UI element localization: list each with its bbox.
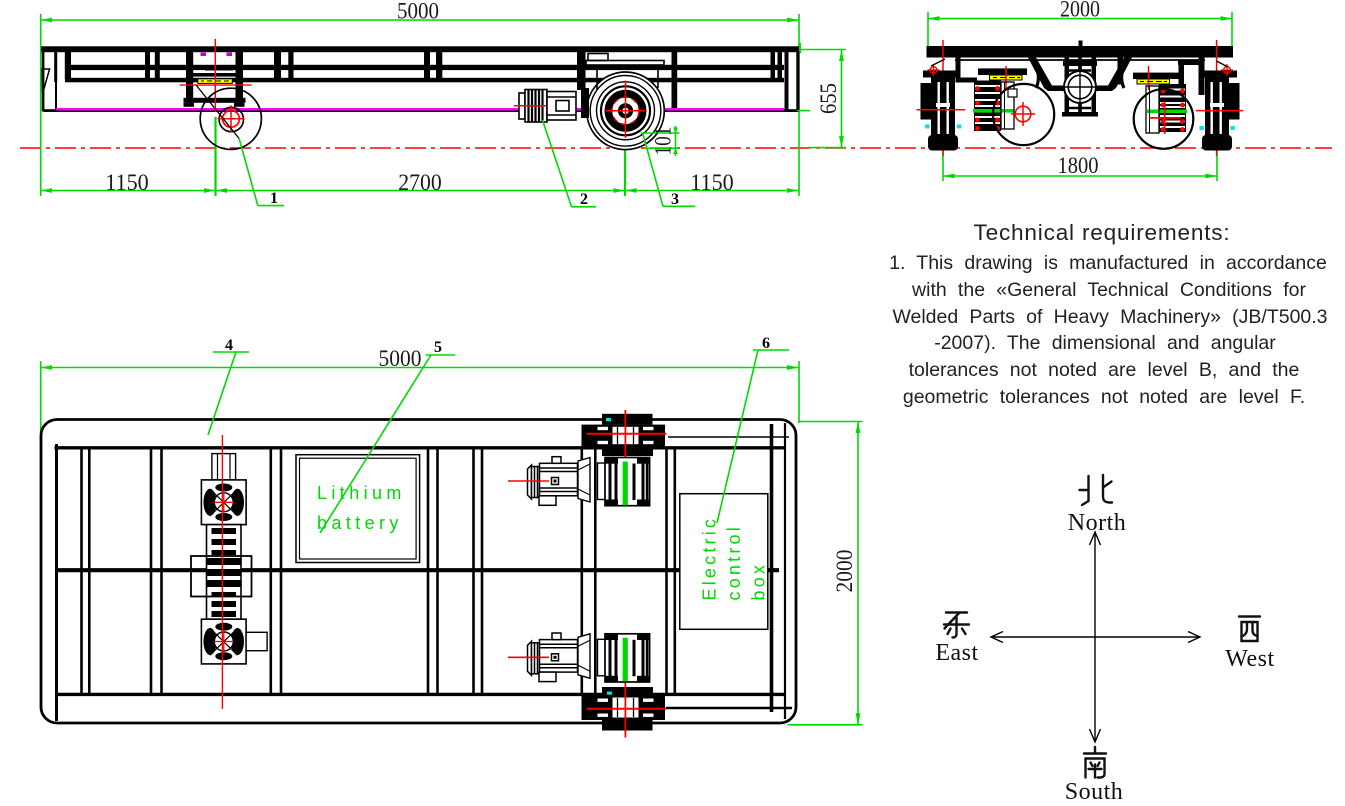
svg-text:Electric: Electric xyxy=(700,516,720,601)
svg-text:1150: 1150 xyxy=(105,170,149,196)
svg-text:101: 101 xyxy=(651,127,677,156)
svg-text:1: 1 xyxy=(270,190,278,207)
svg-text:tolerances not noted are level: tolerances not noted are level B, and th… xyxy=(909,359,1300,381)
svg-text:North: North xyxy=(1068,510,1127,536)
svg-text:2: 2 xyxy=(580,191,588,208)
svg-text:West: West xyxy=(1225,646,1274,672)
svg-text:4: 4 xyxy=(225,337,233,354)
svg-text:655: 655 xyxy=(816,83,842,114)
svg-text:Welded Parts of Heavy Machiner: Welded Parts of Heavy Machinery» (JB/T50… xyxy=(892,306,1327,328)
svg-text:5: 5 xyxy=(434,339,442,356)
svg-text:East: East xyxy=(935,640,978,666)
svg-text:control: control xyxy=(724,524,744,600)
svg-text:5000: 5000 xyxy=(397,0,439,24)
svg-text:1. This drawing is manufacture: 1. This drawing is manufactured in accor… xyxy=(889,252,1327,274)
svg-text:-2007). The dimensional and an: -2007). The dimensional and angular xyxy=(934,332,1276,354)
svg-text:6: 6 xyxy=(762,335,770,352)
svg-text:2000: 2000 xyxy=(832,550,858,593)
svg-text:2700: 2700 xyxy=(398,170,442,196)
svg-text:with the «General Technical Co: with the «General Technical Conditions f… xyxy=(911,279,1306,301)
svg-text:3: 3 xyxy=(671,191,679,208)
svg-text:1800: 1800 xyxy=(1058,153,1099,179)
svg-text:South: South xyxy=(1065,779,1124,801)
svg-text:2000: 2000 xyxy=(1060,0,1100,22)
svg-text:Technical requirements:: Technical requirements: xyxy=(973,220,1230,245)
svg-text:box: box xyxy=(749,562,769,601)
svg-text:Lithium: Lithium xyxy=(317,483,406,503)
svg-text:1150: 1150 xyxy=(690,170,734,196)
svg-text:5000: 5000 xyxy=(379,346,422,372)
svg-text:geometric tolerances not noted: geometric tolerances not noted are level… xyxy=(903,386,1305,408)
